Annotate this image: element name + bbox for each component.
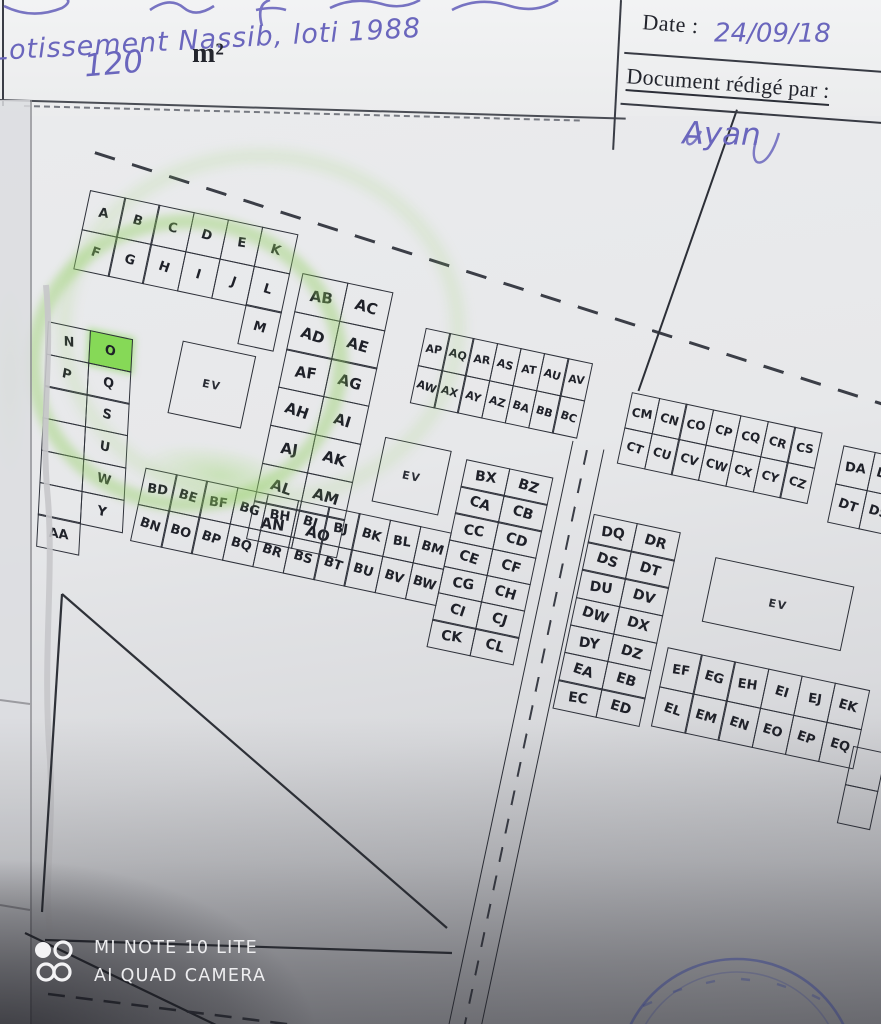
photographed-plan-document: ABCDEKFGHIJLM NOPQSUWYAA ABACADAEAFAGAHA…	[0, 0, 881, 1024]
date-value-handwritten: 24/09/18	[714, 18, 831, 48]
lot-block-ef: EFEGEHEIEJEKELEMENEOEPEQ	[651, 647, 868, 767]
date-label: Date :	[642, 9, 700, 39]
watermark-camera-label: AI QUAD CAMERA	[94, 962, 266, 990]
camera-watermark: MI NOTE 10 LITE AI QUAD CAMERA	[33, 934, 266, 990]
lot-cell-empty	[837, 784, 879, 830]
lot-block-bx: BXBZCACBCCCDCECFCGCHCICJCKCL	[427, 459, 552, 663]
highlighter-mark	[0, 278, 28, 478]
under-page-edge	[0, 100, 30, 1024]
under-page-lines	[0, 700, 30, 910]
author-label: Document rédigé par :	[625, 63, 830, 106]
green-space-ev: EV	[702, 557, 855, 651]
area-value-handwritten: 120	[83, 43, 145, 84]
area-unit: m²	[192, 38, 224, 70]
watermark-device-name: MI NOTE 10 LITE	[94, 934, 266, 962]
quad-camera-lens-icon	[33, 939, 79, 985]
ink-stamp	[618, 959, 856, 1024]
lot-block-da: DADBDTDS	[827, 445, 881, 540]
lot-block-cm: CMCNCOCPCQCRCSCTCUCVCWCXCYCZ	[617, 392, 822, 502]
lot-row: DTDS	[827, 483, 881, 542]
boundary-dashed-bottom	[48, 994, 302, 1024]
form-fields: Date : 24/09/18 Document rédigé par : Ay…	[618, 2, 881, 164]
lot-CZ: CZ	[779, 462, 815, 504]
author-signature-handwritten: Ayan	[682, 115, 761, 153]
lot-row	[837, 784, 877, 830]
watermark-text: MI NOTE 10 LITE AI QUAD CAMERA	[94, 934, 266, 990]
